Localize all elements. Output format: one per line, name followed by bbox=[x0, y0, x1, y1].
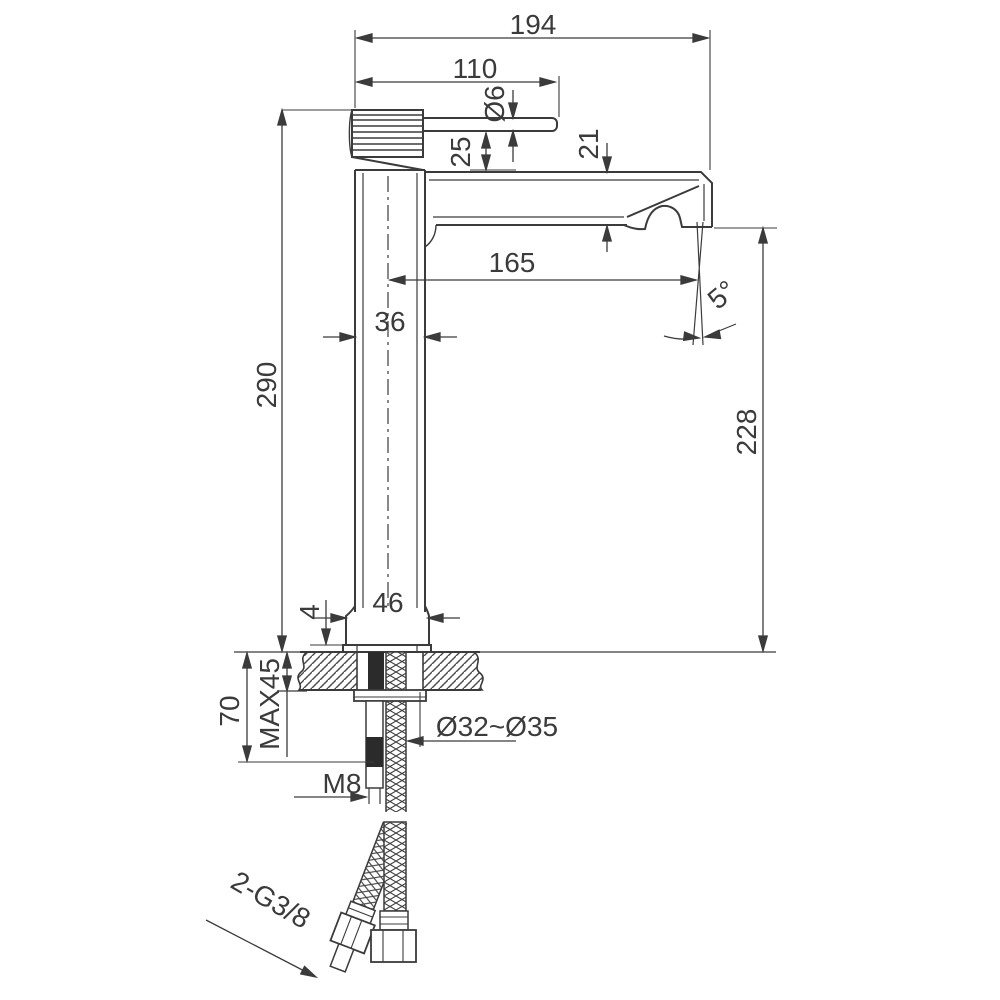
dim-max-deck-thickness-label: MAX45 bbox=[254, 658, 285, 750]
dim-shank-length-label: 70 bbox=[214, 695, 245, 726]
fitting-tip-left bbox=[330, 944, 354, 972]
handle-knob bbox=[349, 110, 423, 170]
dim-lever-spout-gap-label: 25 bbox=[445, 136, 476, 167]
supply-hose-lower bbox=[384, 822, 406, 911]
dim-mounting-hole-label: Ø32~Ø35 bbox=[436, 711, 558, 742]
deck-hatch-left bbox=[298, 652, 357, 690]
dim-base-width-label: 46 bbox=[372, 587, 403, 618]
dim-spout-reach-label: 165 bbox=[489, 247, 536, 278]
dim-lever-spout-gap: 25 bbox=[445, 133, 516, 170]
threaded-stud-deck bbox=[368, 652, 384, 690]
counter-deck bbox=[234, 652, 776, 691]
dim-base-plate-height-label: 4 bbox=[294, 604, 325, 620]
dim-base-width: 46 bbox=[314, 587, 460, 622]
dim-overall-width-label: 194 bbox=[510, 9, 557, 40]
dim-total-height-label: 290 bbox=[251, 362, 282, 409]
dim-spout-height-label: 21 bbox=[573, 128, 604, 159]
collar-right bbox=[380, 911, 408, 930]
dim-mounting-hole: Ø32~Ø35 bbox=[408, 692, 558, 747]
deck-hatch-right bbox=[423, 652, 483, 690]
dim-body-width-label: 36 bbox=[374, 306, 405, 337]
spout-outlet bbox=[624, 206, 712, 229]
dim-max-deck-thickness: MAX45 bbox=[254, 653, 291, 757]
dim-stud-thread-label: M8 bbox=[323, 768, 362, 799]
base-plate bbox=[343, 645, 431, 652]
dim-lever-diameter-label: Ø6 bbox=[479, 85, 510, 122]
dim-spout-height: 21 bbox=[573, 128, 611, 252]
dim-spout-reach: 165 bbox=[390, 247, 696, 284]
spout-arm bbox=[425, 172, 712, 247]
dim-handle-length: 110 bbox=[357, 53, 559, 117]
under-deck-assembly bbox=[322, 652, 426, 976]
body-column bbox=[343, 170, 431, 652]
faucet-outline bbox=[343, 110, 712, 652]
dim-outlet-height-label: 228 bbox=[731, 409, 762, 456]
faucet-dimension-drawing: 194 110 Ø6 25 bbox=[0, 0, 1000, 1000]
mounting-nut bbox=[354, 690, 426, 701]
dim-outlet-angle-label: 5° bbox=[702, 274, 742, 315]
dim-body-width: 36 bbox=[323, 306, 457, 341]
dim-total-height: 290 bbox=[251, 110, 354, 651]
hex-nut-right bbox=[371, 930, 416, 962]
dim-outlet-angle: 5° bbox=[664, 222, 742, 345]
dim-hose-thread: 2-G3/8 bbox=[206, 865, 318, 981]
dim-stud-thread: M8 bbox=[294, 768, 366, 801]
dimensions: 194 110 Ø6 25 bbox=[206, 9, 777, 981]
dim-hose-thread-label: 2-G3/8 bbox=[226, 865, 316, 935]
dim-handle-length-label: 110 bbox=[453, 53, 498, 84]
dim-base-plate-height: 4 bbox=[294, 600, 343, 645]
drawing-canvas: 194 110 Ø6 25 bbox=[0, 0, 1000, 1000]
supply-hose-upper bbox=[386, 652, 406, 813]
